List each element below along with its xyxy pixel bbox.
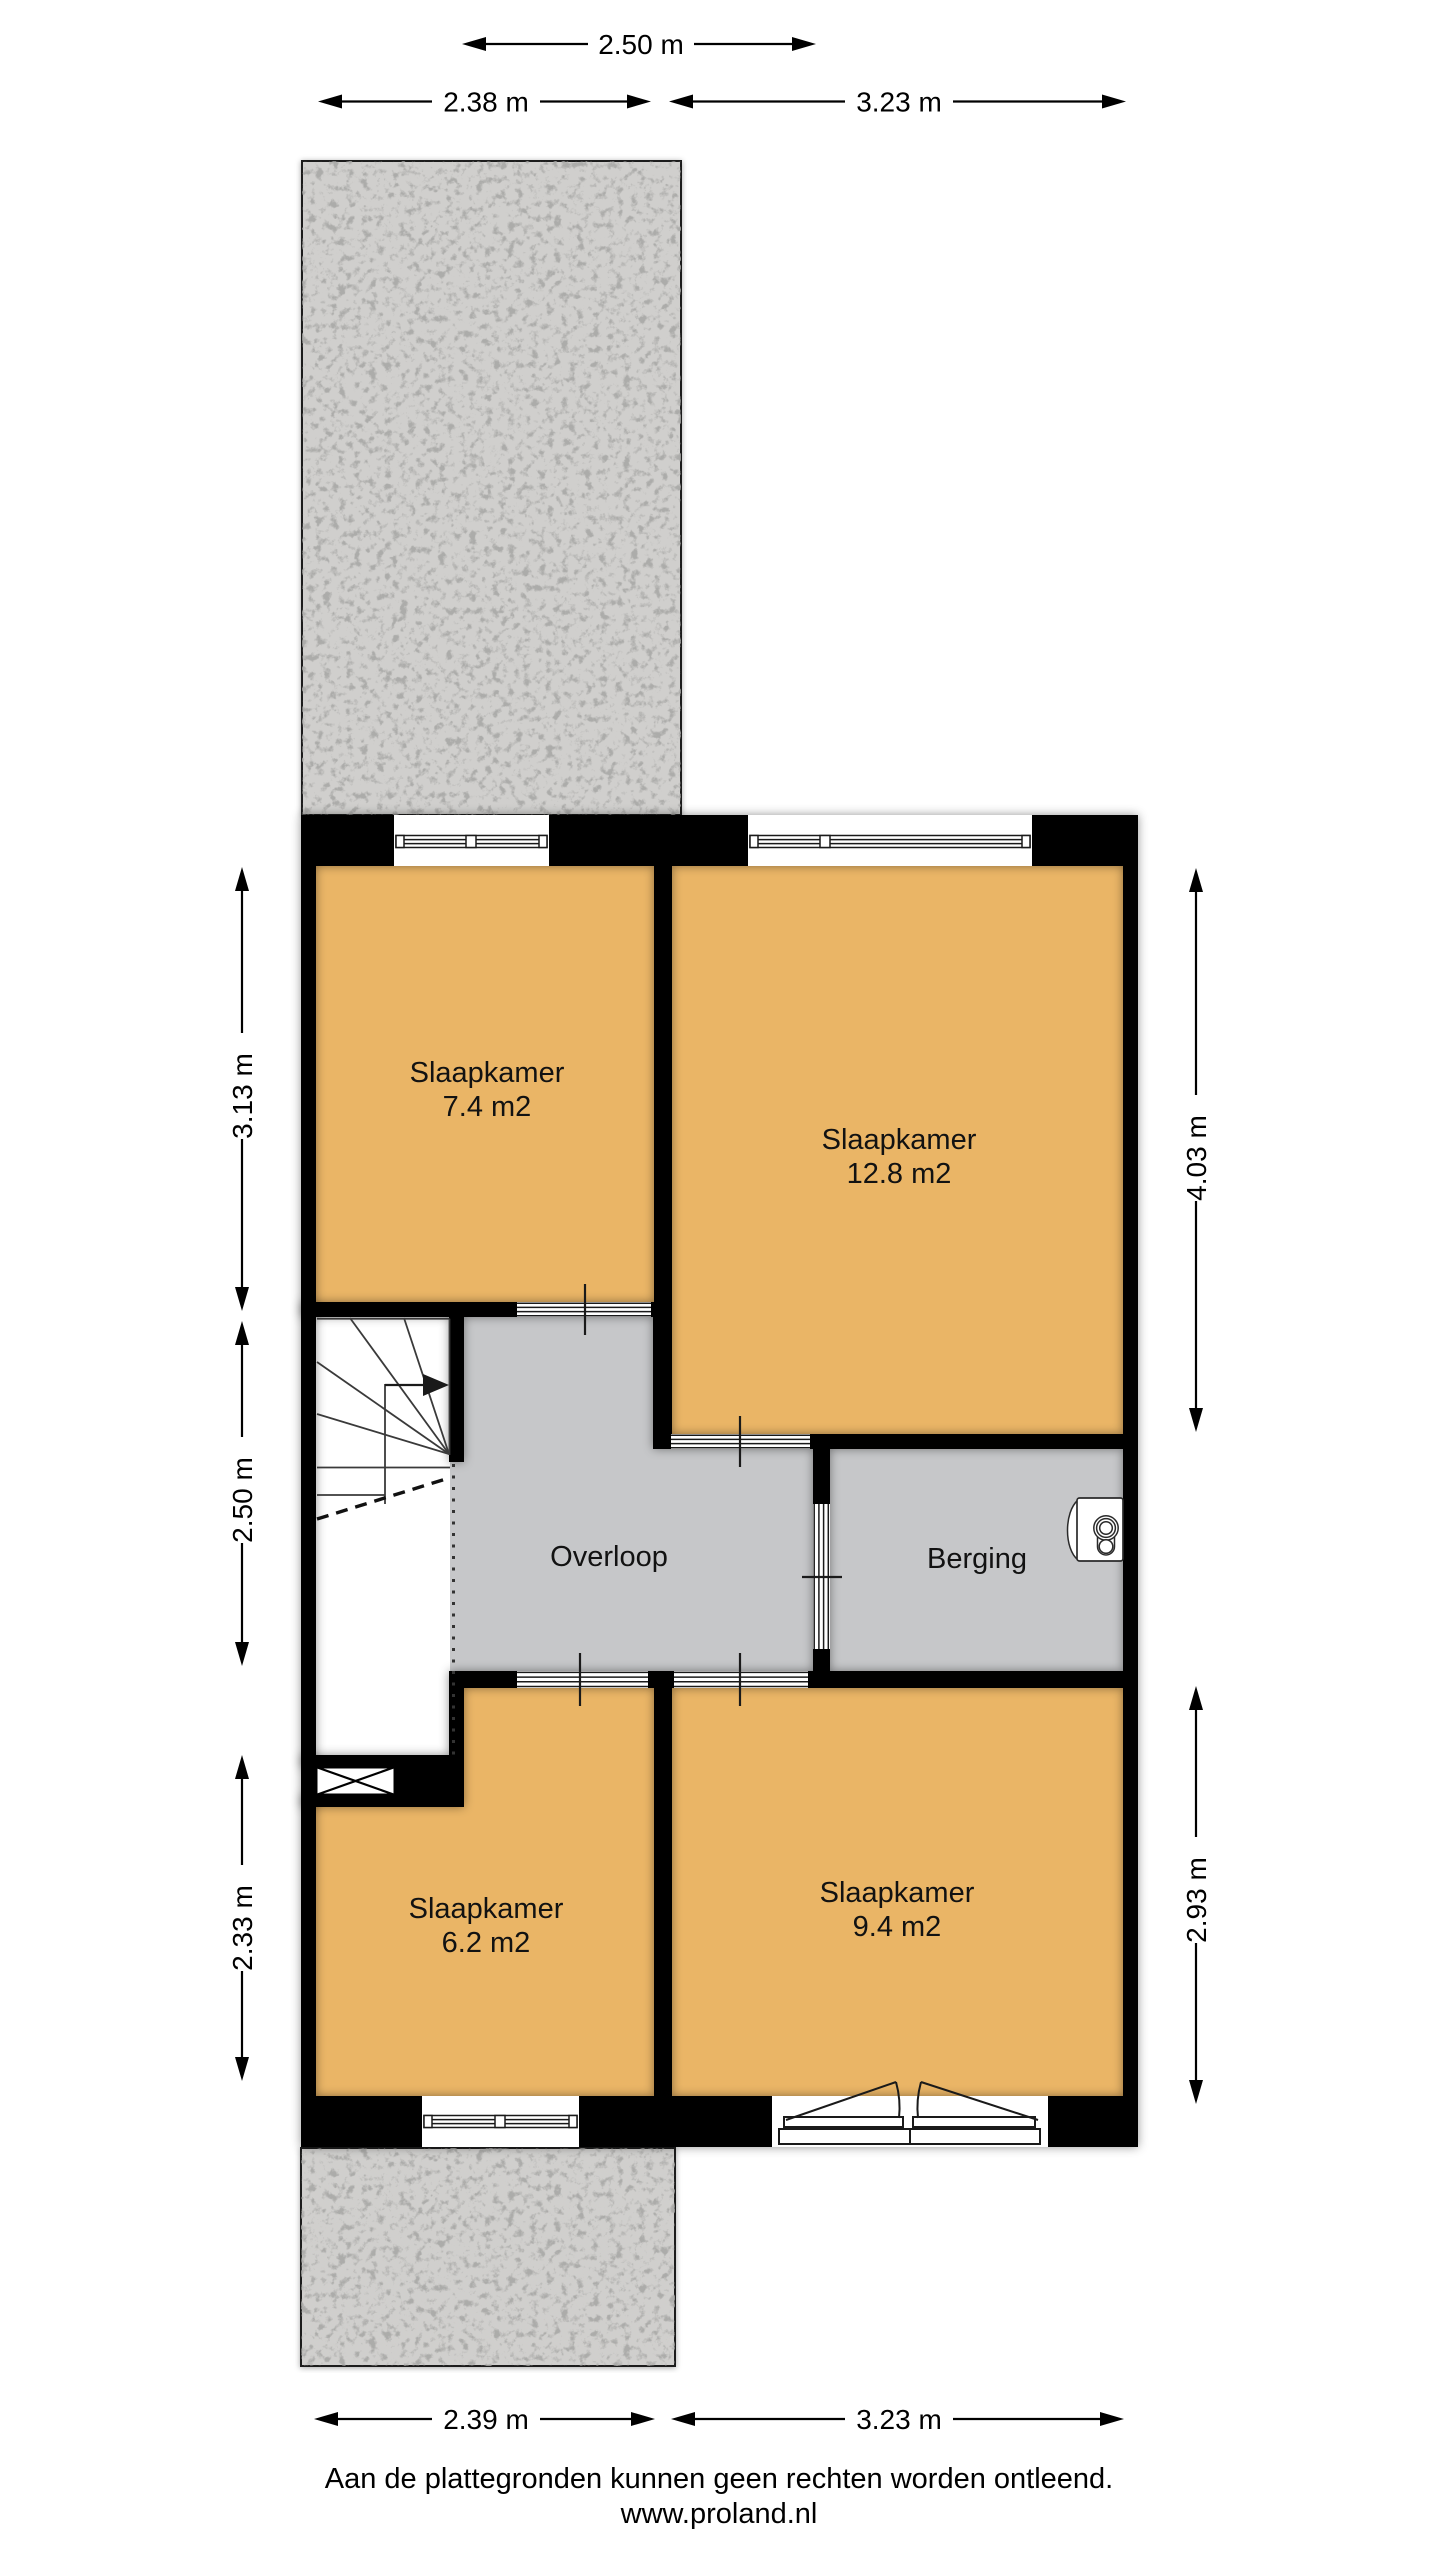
svg-text:Overloop: Overloop bbox=[550, 1541, 668, 1573]
svg-text:2.93 m: 2.93 m bbox=[1181, 1857, 1212, 1943]
svg-text:3.23 m: 3.23 m bbox=[856, 2404, 942, 2435]
svg-text:Slaapkamer: Slaapkamer bbox=[409, 1893, 564, 1925]
svg-text:7.4 m2: 7.4 m2 bbox=[443, 1091, 532, 1123]
svg-text:Slaapkamer: Slaapkamer bbox=[822, 1124, 977, 1156]
svg-text:9.4 m2: 9.4 m2 bbox=[853, 1911, 942, 1943]
svg-text:2.50 m: 2.50 m bbox=[598, 29, 684, 60]
svg-text:2.38 m: 2.38 m bbox=[443, 87, 529, 118]
svg-text:Slaapkamer: Slaapkamer bbox=[410, 1057, 565, 1089]
svg-text:6.2 m2: 6.2 m2 bbox=[442, 1927, 531, 1959]
svg-text:www.proland.nl: www.proland.nl bbox=[620, 2498, 818, 2530]
svg-text:2.33 m: 2.33 m bbox=[227, 1885, 258, 1971]
svg-text:2.39 m: 2.39 m bbox=[443, 2404, 529, 2435]
svg-text:Berging: Berging bbox=[927, 1543, 1027, 1575]
svg-text:Aan de plattegronden kunnen ge: Aan de plattegronden kunnen geen rechten… bbox=[325, 2463, 1113, 2495]
svg-text:Slaapkamer: Slaapkamer bbox=[820, 1877, 975, 1909]
svg-text:3.23 m: 3.23 m bbox=[856, 87, 942, 118]
svg-text:4.03 m: 4.03 m bbox=[1181, 1115, 1212, 1201]
svg-text:3.13 m: 3.13 m bbox=[227, 1053, 258, 1139]
svg-text:2.50 m: 2.50 m bbox=[227, 1457, 258, 1543]
svg-text:12.8 m2: 12.8 m2 bbox=[847, 1158, 952, 1190]
